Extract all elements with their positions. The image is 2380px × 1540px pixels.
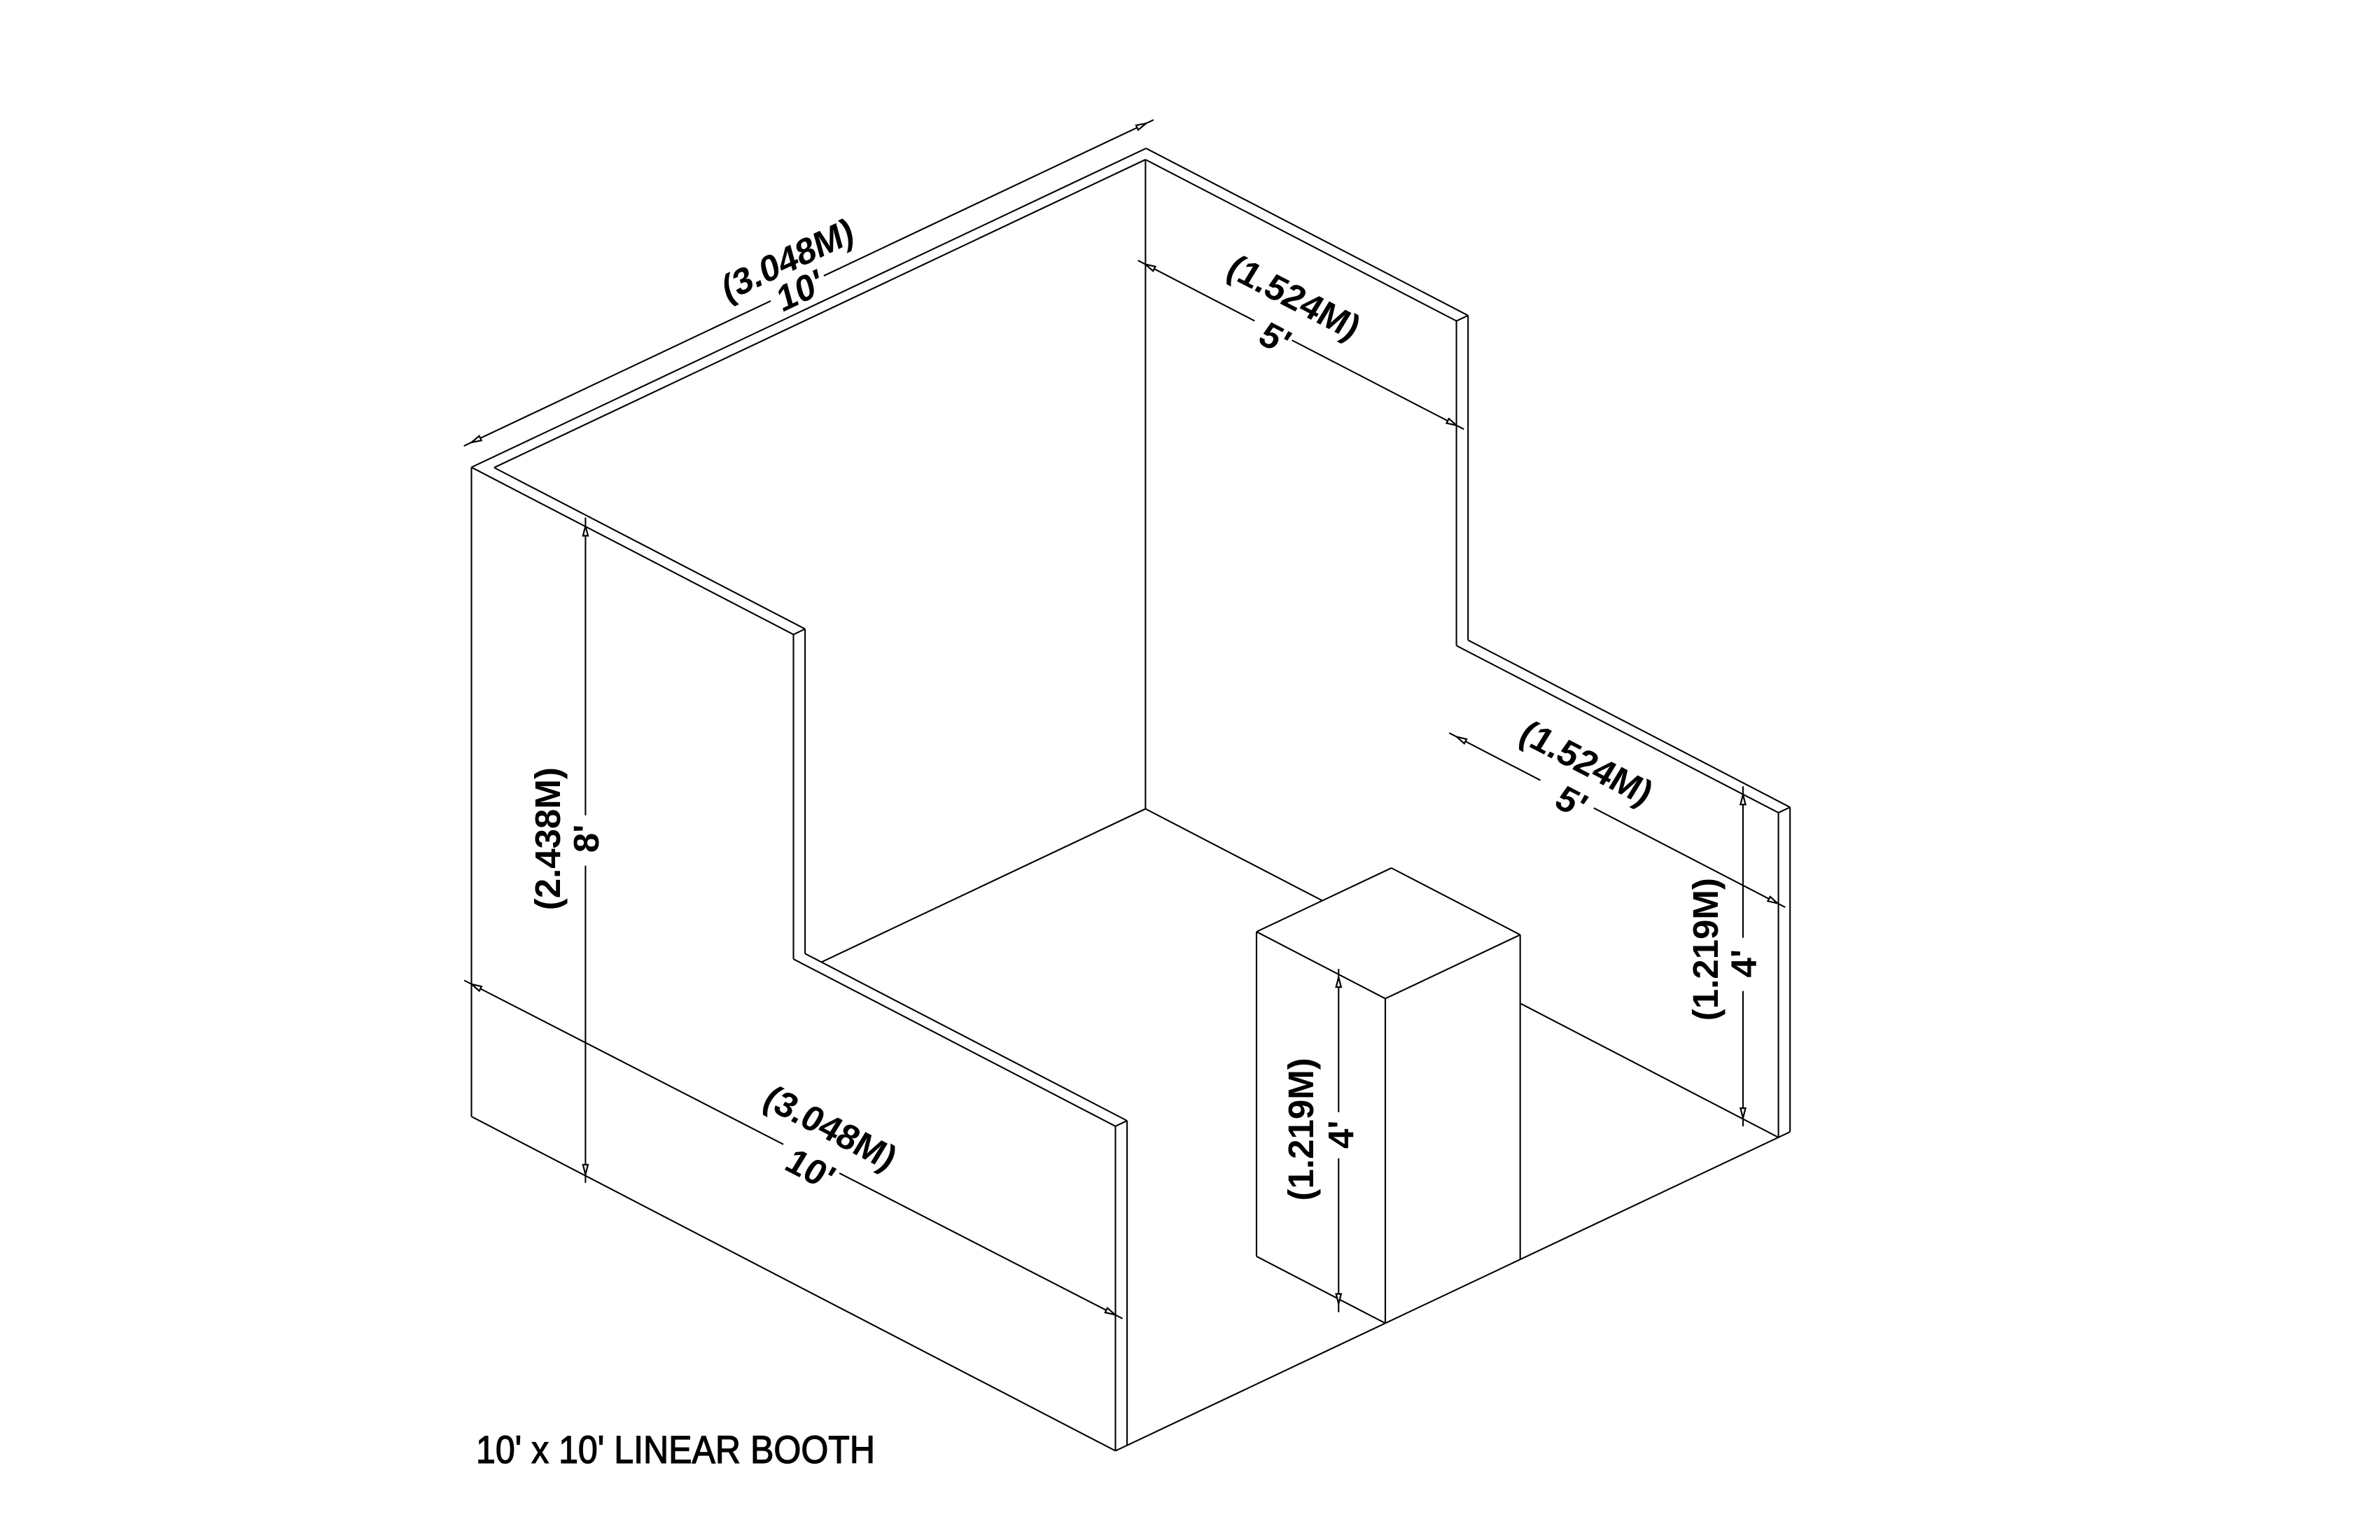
svg-text:4': 4' — [1321, 1121, 1361, 1149]
svg-text:(2.438M): (2.438M) — [528, 767, 568, 910]
svg-text:10' x 10' LINEAR BOOTH: 10' x 10' LINEAR BOOTH — [476, 1427, 875, 1471]
svg-text:8': 8' — [566, 825, 606, 853]
svg-text:4': 4' — [1724, 949, 1764, 978]
svg-text:(1.219M): (1.219M) — [1281, 1058, 1321, 1200]
svg-text:(1.219M): (1.219M) — [1686, 878, 1725, 1021]
